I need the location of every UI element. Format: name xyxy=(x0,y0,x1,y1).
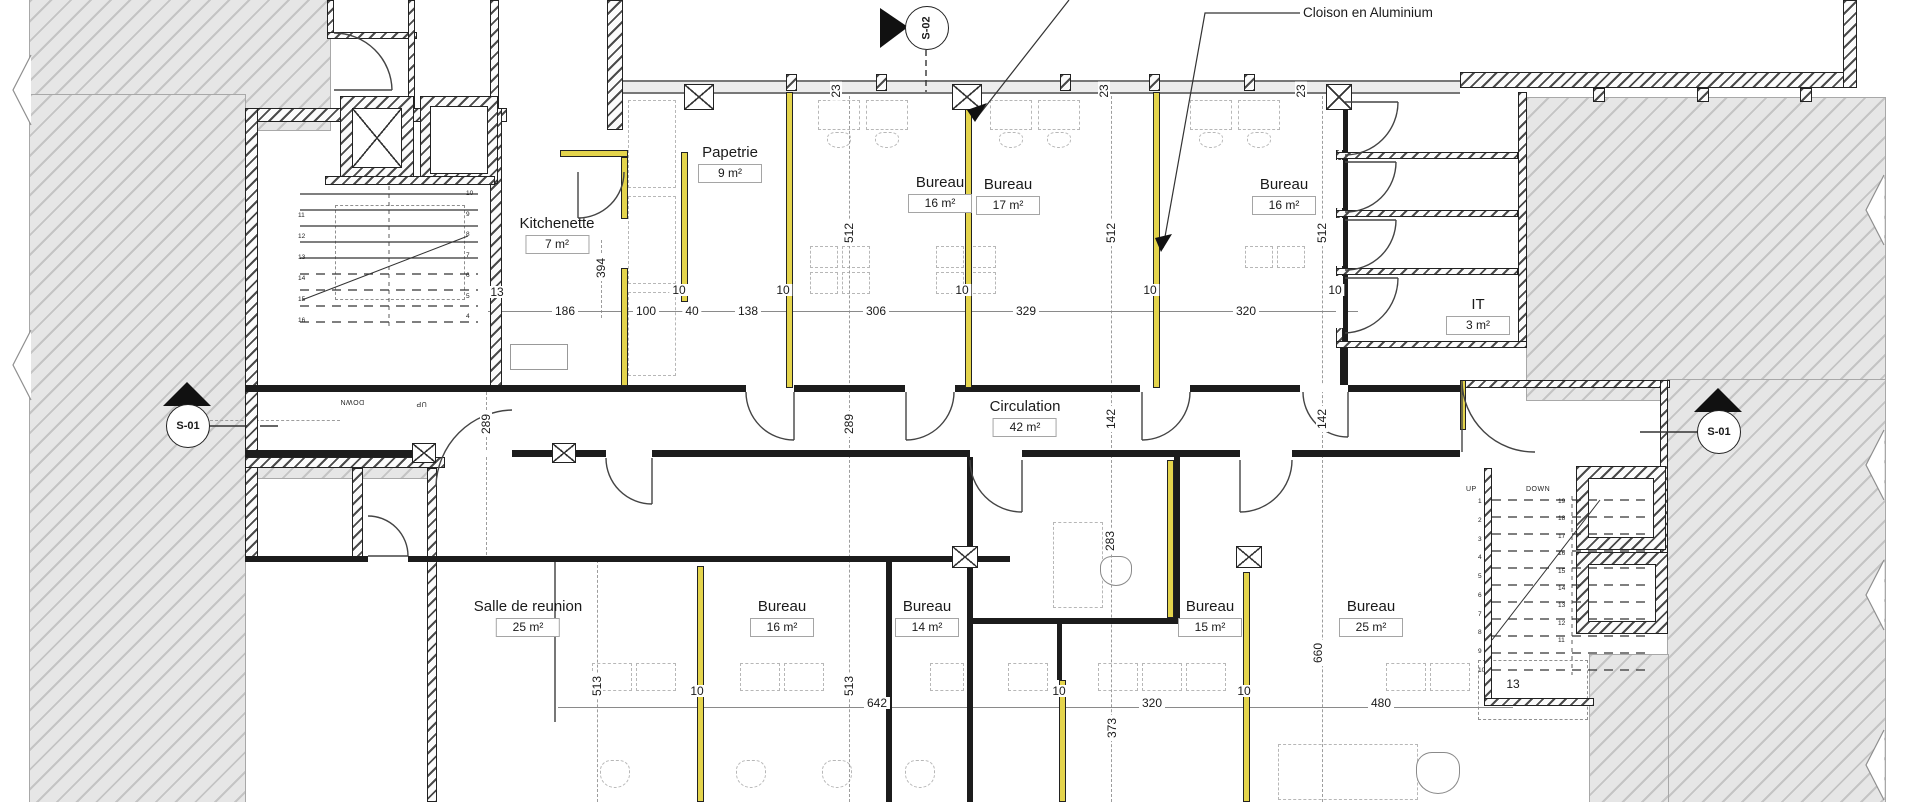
corridor-centerline xyxy=(210,420,340,421)
structural-column xyxy=(684,84,714,110)
dimension-label: 13 xyxy=(487,286,506,298)
stair-down-label: DOWN xyxy=(340,398,364,405)
stair-numbers: 191817161514131211 xyxy=(1558,498,1576,644)
room-area-badge: 3 m² xyxy=(1446,316,1510,335)
room-label-bureau-16b: Bureau 16 m² xyxy=(1252,176,1316,215)
room-label-it: IT 3 m² xyxy=(1446,296,1510,335)
centerline xyxy=(1111,86,1112,802)
core-left-wall xyxy=(245,108,258,560)
partition-wall xyxy=(1167,460,1174,618)
section-marker-top: S-02 xyxy=(905,6,949,50)
curtain-wall-line xyxy=(617,80,1460,82)
dimension-label: 23 xyxy=(1098,81,1110,100)
room-area-badge: 9 m² xyxy=(698,164,762,183)
room-label-bureau-25: Bureau 25 m² xyxy=(1339,598,1403,637)
wall xyxy=(967,457,973,802)
dimension-label: 512 xyxy=(843,220,855,246)
exterior-hatch-lower-left-rooms xyxy=(252,468,434,478)
floor-plan: S-02 S-01 S-01 Cloison en Aluminium Pape… xyxy=(0,0,1920,802)
wall xyxy=(1057,618,1062,680)
wall xyxy=(967,618,1180,624)
shaft xyxy=(1588,478,1654,538)
column xyxy=(786,74,797,91)
room-area-badge: 16 m² xyxy=(908,194,972,213)
structural-column xyxy=(1236,546,1262,568)
dimension-label: 283 xyxy=(1104,528,1116,554)
cells-right-wall xyxy=(1518,92,1527,348)
room-area-badge: 15 m² xyxy=(1178,618,1242,637)
stair-numbers: 12345678910 xyxy=(1478,498,1492,674)
dimension-label: 513 xyxy=(843,673,855,699)
dimension-label: 289 xyxy=(843,411,855,437)
wall xyxy=(427,468,437,802)
dimension-label: 373 xyxy=(1106,715,1118,741)
exterior-hatch-under-stair xyxy=(1590,655,1668,802)
column xyxy=(1593,88,1605,102)
partition-wall-papetrie xyxy=(786,92,793,388)
column xyxy=(1149,74,1160,91)
structural-column xyxy=(952,84,982,110)
stair-landing-dashed xyxy=(335,205,465,300)
cells-divider xyxy=(1336,152,1518,159)
room-label-bureau-16c: Bureau 16 m² xyxy=(750,598,814,637)
structural-column xyxy=(412,443,436,463)
dimension-line xyxy=(488,311,1358,312)
wall xyxy=(352,468,363,560)
wall xyxy=(886,562,892,802)
stair-numbers: 111213141516 xyxy=(298,212,314,324)
dimension-label: 100 xyxy=(633,305,659,317)
dimension-label: 10 xyxy=(1234,685,1253,697)
dimension-label: 142 xyxy=(1105,406,1117,432)
stair-up-label: UP xyxy=(416,400,427,407)
wall xyxy=(245,556,1010,562)
dimension-label: 138 xyxy=(735,305,761,317)
elevator-cab xyxy=(352,108,402,168)
column xyxy=(1800,88,1812,102)
wall-return xyxy=(1843,0,1857,88)
dimension-label: 660 xyxy=(1312,640,1324,666)
wall xyxy=(408,0,415,108)
room-label-salle-reunion: Salle de reunion 25 m² xyxy=(474,598,582,637)
stair-up-label: UP xyxy=(1466,486,1477,493)
partition-wall xyxy=(1460,380,1466,430)
structural-column xyxy=(1326,84,1352,110)
stair-top-wall xyxy=(1460,380,1670,388)
dimension-label: 10 xyxy=(773,284,792,296)
cells-bottom-wall xyxy=(1336,341,1527,348)
structural-column xyxy=(552,443,576,463)
room-label-kitchenette: Kitchenette 7 m² xyxy=(519,215,594,254)
partition-wall-bureau xyxy=(965,92,972,388)
room-label-circulation: Circulation 42 m² xyxy=(990,398,1061,437)
dimension-label: 642 xyxy=(864,697,890,709)
dimension-label: 480 xyxy=(1368,697,1394,709)
dimension-label: 512 xyxy=(1105,220,1117,246)
partition-wall-bureau xyxy=(1153,92,1160,388)
dimension-label: 329 xyxy=(1013,305,1039,317)
room-label-papetrie: Papetrie 9 m² xyxy=(698,144,762,183)
shaft xyxy=(430,106,488,174)
structural-column xyxy=(952,546,978,568)
wall xyxy=(490,0,499,108)
section-marker-right: S-01 xyxy=(1697,410,1741,454)
shaft xyxy=(1588,564,1656,622)
room-area-badge: 42 m² xyxy=(993,418,1057,437)
room-area-badge: 17 m² xyxy=(976,196,1040,215)
room-area-badge: 14 m² xyxy=(895,618,959,637)
window-mullion xyxy=(554,562,556,722)
dimension-label: 142 xyxy=(1316,406,1328,432)
exterior-hatch-left-band xyxy=(30,95,245,802)
wall xyxy=(1174,457,1180,621)
room-area-badge: 7 m² xyxy=(525,235,589,254)
column xyxy=(1244,74,1255,91)
dimension-label: 306 xyxy=(863,305,889,317)
corridor-top-wall xyxy=(245,385,1460,392)
stair-down-label: DOWN xyxy=(1526,486,1550,493)
room-area-badge: 16 m² xyxy=(1252,196,1316,215)
room-label-bureau-15: Bureau 15 m² xyxy=(1178,598,1242,637)
partition-wall xyxy=(621,157,628,219)
dimension-label: 320 xyxy=(1139,697,1165,709)
centerline xyxy=(1322,86,1323,802)
stair-bottom-wall xyxy=(1484,698,1594,706)
dimension-label: 23 xyxy=(1295,81,1307,100)
room-label-bureau-16a: Bureau 16 m² xyxy=(908,174,972,213)
room-label-bureau-17: Bureau 17 m² xyxy=(976,176,1040,215)
column xyxy=(1697,88,1709,102)
dimension-label: 512 xyxy=(1316,220,1328,246)
wall xyxy=(607,0,623,130)
dimension-label: 13 xyxy=(1503,678,1522,690)
dimension-label: 10 xyxy=(1049,685,1068,697)
dimension-label: 10 xyxy=(1325,284,1344,296)
room-area-badge: 16 m² xyxy=(750,618,814,637)
room-label-bureau-14: Bureau 14 m² xyxy=(895,598,959,637)
stair-top-wall xyxy=(325,176,495,185)
exterior-wall-top-right xyxy=(1460,72,1855,88)
partition-wall xyxy=(560,150,628,157)
column xyxy=(1060,74,1071,91)
room-area-badge: 25 m² xyxy=(496,618,560,637)
dimension-label: 10 xyxy=(669,284,688,296)
dimension-label: 23 xyxy=(830,81,842,100)
dimension-label: 289 xyxy=(480,411,492,437)
dimension-label: 10 xyxy=(952,284,971,296)
annotation-cloison: Cloison en Aluminium xyxy=(1303,5,1433,20)
partition-wall xyxy=(1059,680,1066,802)
dimension-label: 10 xyxy=(1140,284,1159,296)
stair-numbers: 10987654 xyxy=(466,190,482,320)
exterior-hatch-right-upper xyxy=(1527,98,1885,400)
door-arcs xyxy=(334,33,1535,556)
cells-divider xyxy=(1336,268,1518,275)
dimension-label: 186 xyxy=(552,305,578,317)
room-area-badge: 25 m² xyxy=(1339,618,1403,637)
dimension-label: 10 xyxy=(687,685,706,697)
section-marker-left: S-01 xyxy=(166,404,210,448)
stair-landing-dashed xyxy=(1478,660,1588,720)
cells-divider xyxy=(1336,210,1518,217)
partition-wall xyxy=(681,152,688,302)
column xyxy=(876,74,887,91)
partition-wall xyxy=(621,268,628,386)
dimension-label: 40 xyxy=(682,305,701,317)
wall xyxy=(327,32,417,39)
dimension-label: 320 xyxy=(1233,305,1259,317)
dimension-label: 513 xyxy=(591,673,603,699)
dimension-label: 394 xyxy=(595,255,607,281)
